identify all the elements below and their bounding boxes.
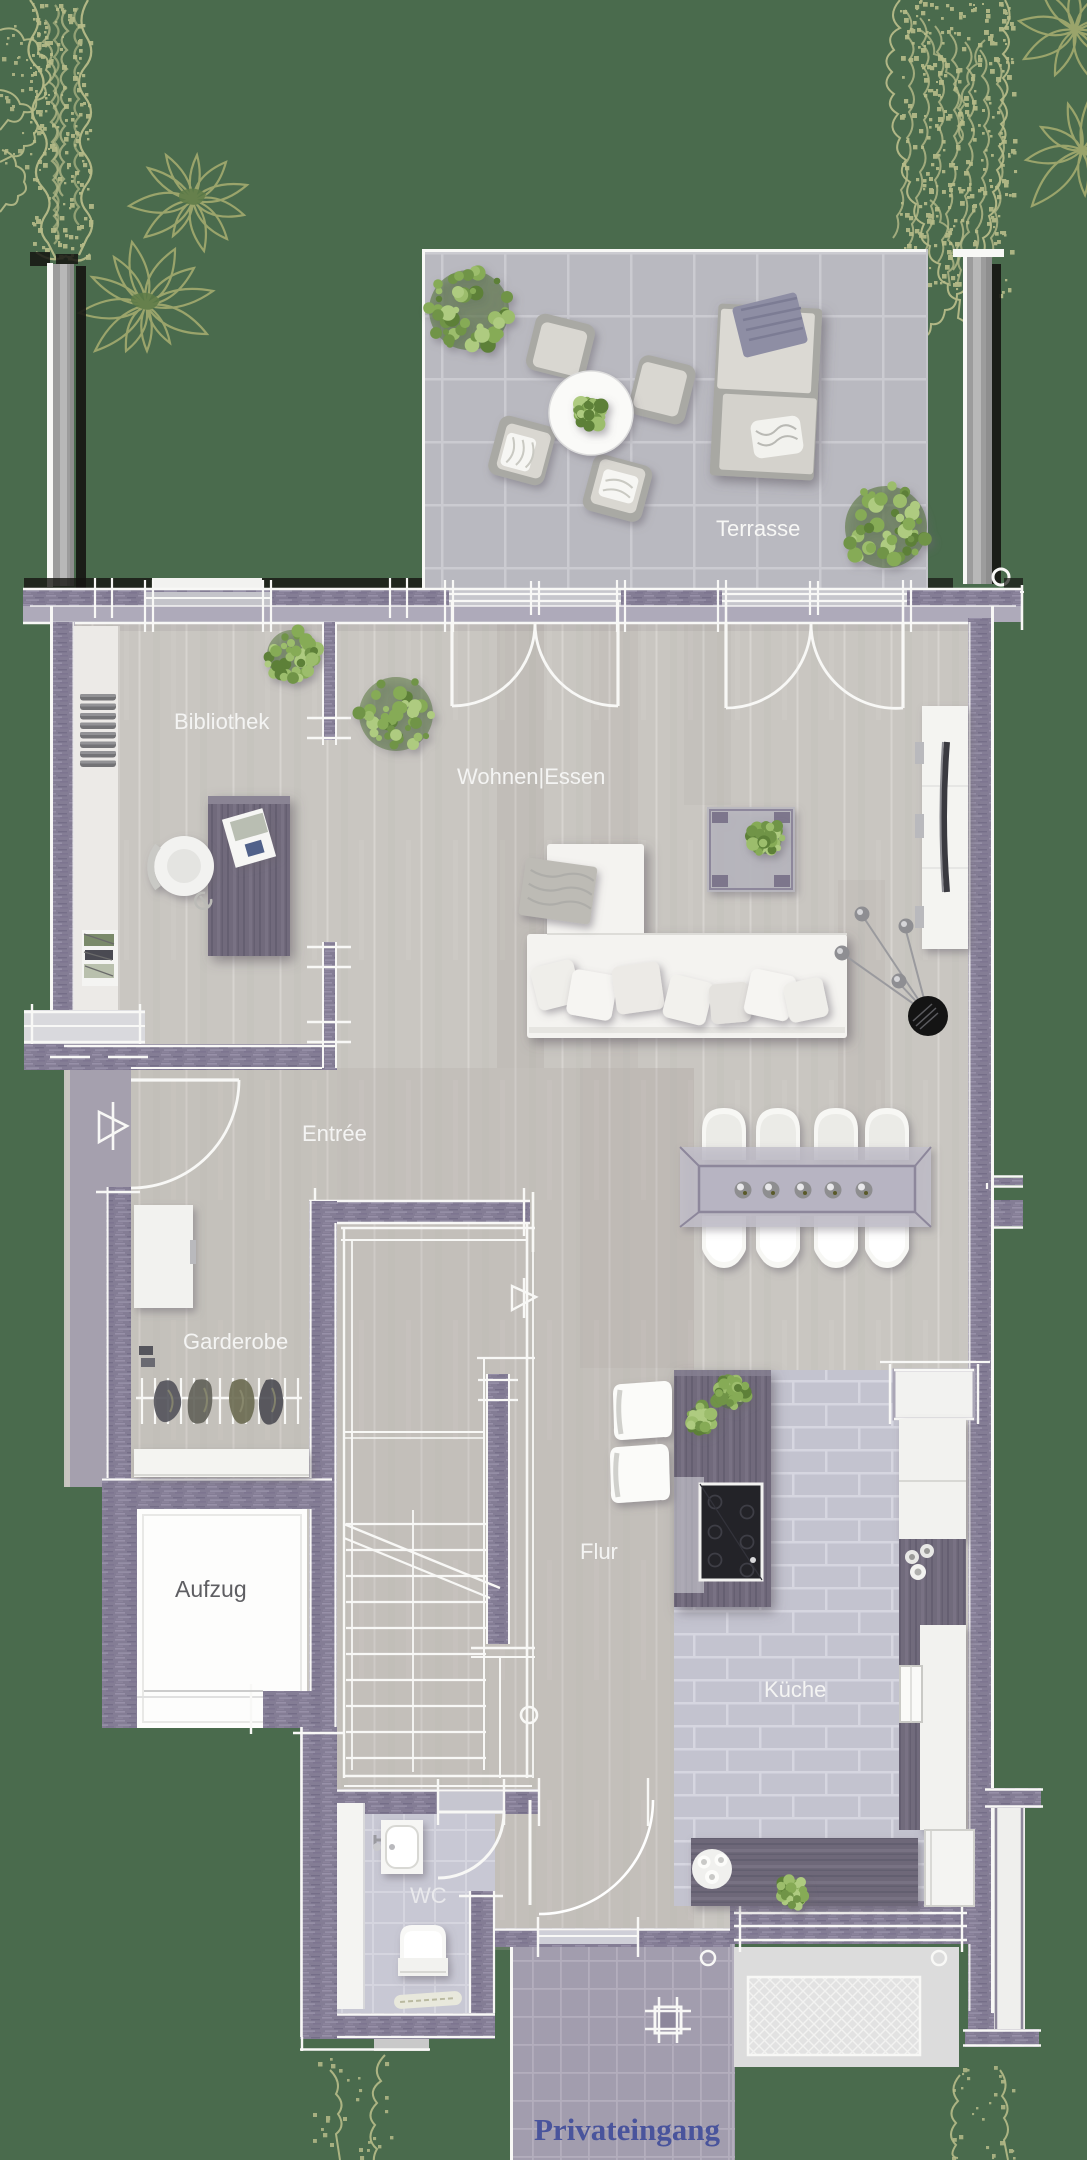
svg-text:Terrasse: Terrasse <box>716 516 800 541</box>
svg-text:Garderobe: Garderobe <box>183 1329 288 1354</box>
svg-text:Privateingang: Privateingang <box>534 2112 720 2147</box>
svg-text:Entrée: Entrée <box>302 1121 367 1146</box>
svg-text:WC: WC <box>410 1883 447 1908</box>
svg-text:Wohnen|Essen: Wohnen|Essen <box>457 764 605 789</box>
svg-text:Flur: Flur <box>580 1539 618 1564</box>
svg-text:Aufzug: Aufzug <box>175 1576 247 1602</box>
svg-text:Bibliothek: Bibliothek <box>174 709 270 734</box>
svg-text:Küche: Küche <box>764 1677 826 1702</box>
